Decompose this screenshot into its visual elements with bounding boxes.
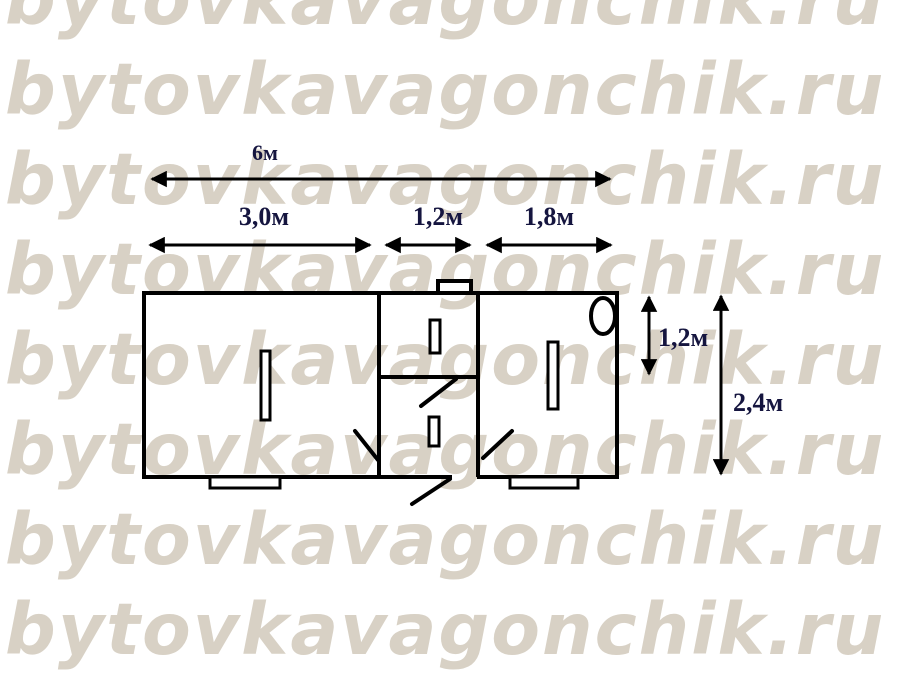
floorplan-drawing [0, 0, 900, 675]
dimension-label-segment-middle: 1,2м [388, 204, 488, 230]
entry-step-right [510, 477, 578, 488]
dimension-label-height-upper: 1,2м [658, 325, 708, 351]
door-leaf-left-room [355, 431, 378, 460]
window-middle-bottom [429, 417, 439, 446]
washbasin-oval [591, 298, 615, 334]
roof-vent [438, 281, 471, 293]
floorplan-page: bytovkavagonchik.ru bytovkavagonchik.ru … [0, 0, 900, 675]
dimension-label-segment-left: 3,0м [214, 204, 314, 230]
window-right-room [548, 342, 558, 409]
door-leaf-middle-partition [421, 379, 456, 406]
dimension-label-height-total: 2,4м [733, 390, 783, 416]
dimension-label-segment-right: 1,8м [499, 204, 599, 230]
door-leaf-right-room [483, 431, 512, 458]
door-leaf-entrance [412, 479, 450, 504]
dimension-label-total-length: 6м [240, 142, 290, 164]
window-left-room [261, 351, 270, 420]
window-middle-top [430, 320, 440, 353]
entry-step-left [210, 477, 280, 488]
windows [261, 320, 558, 446]
